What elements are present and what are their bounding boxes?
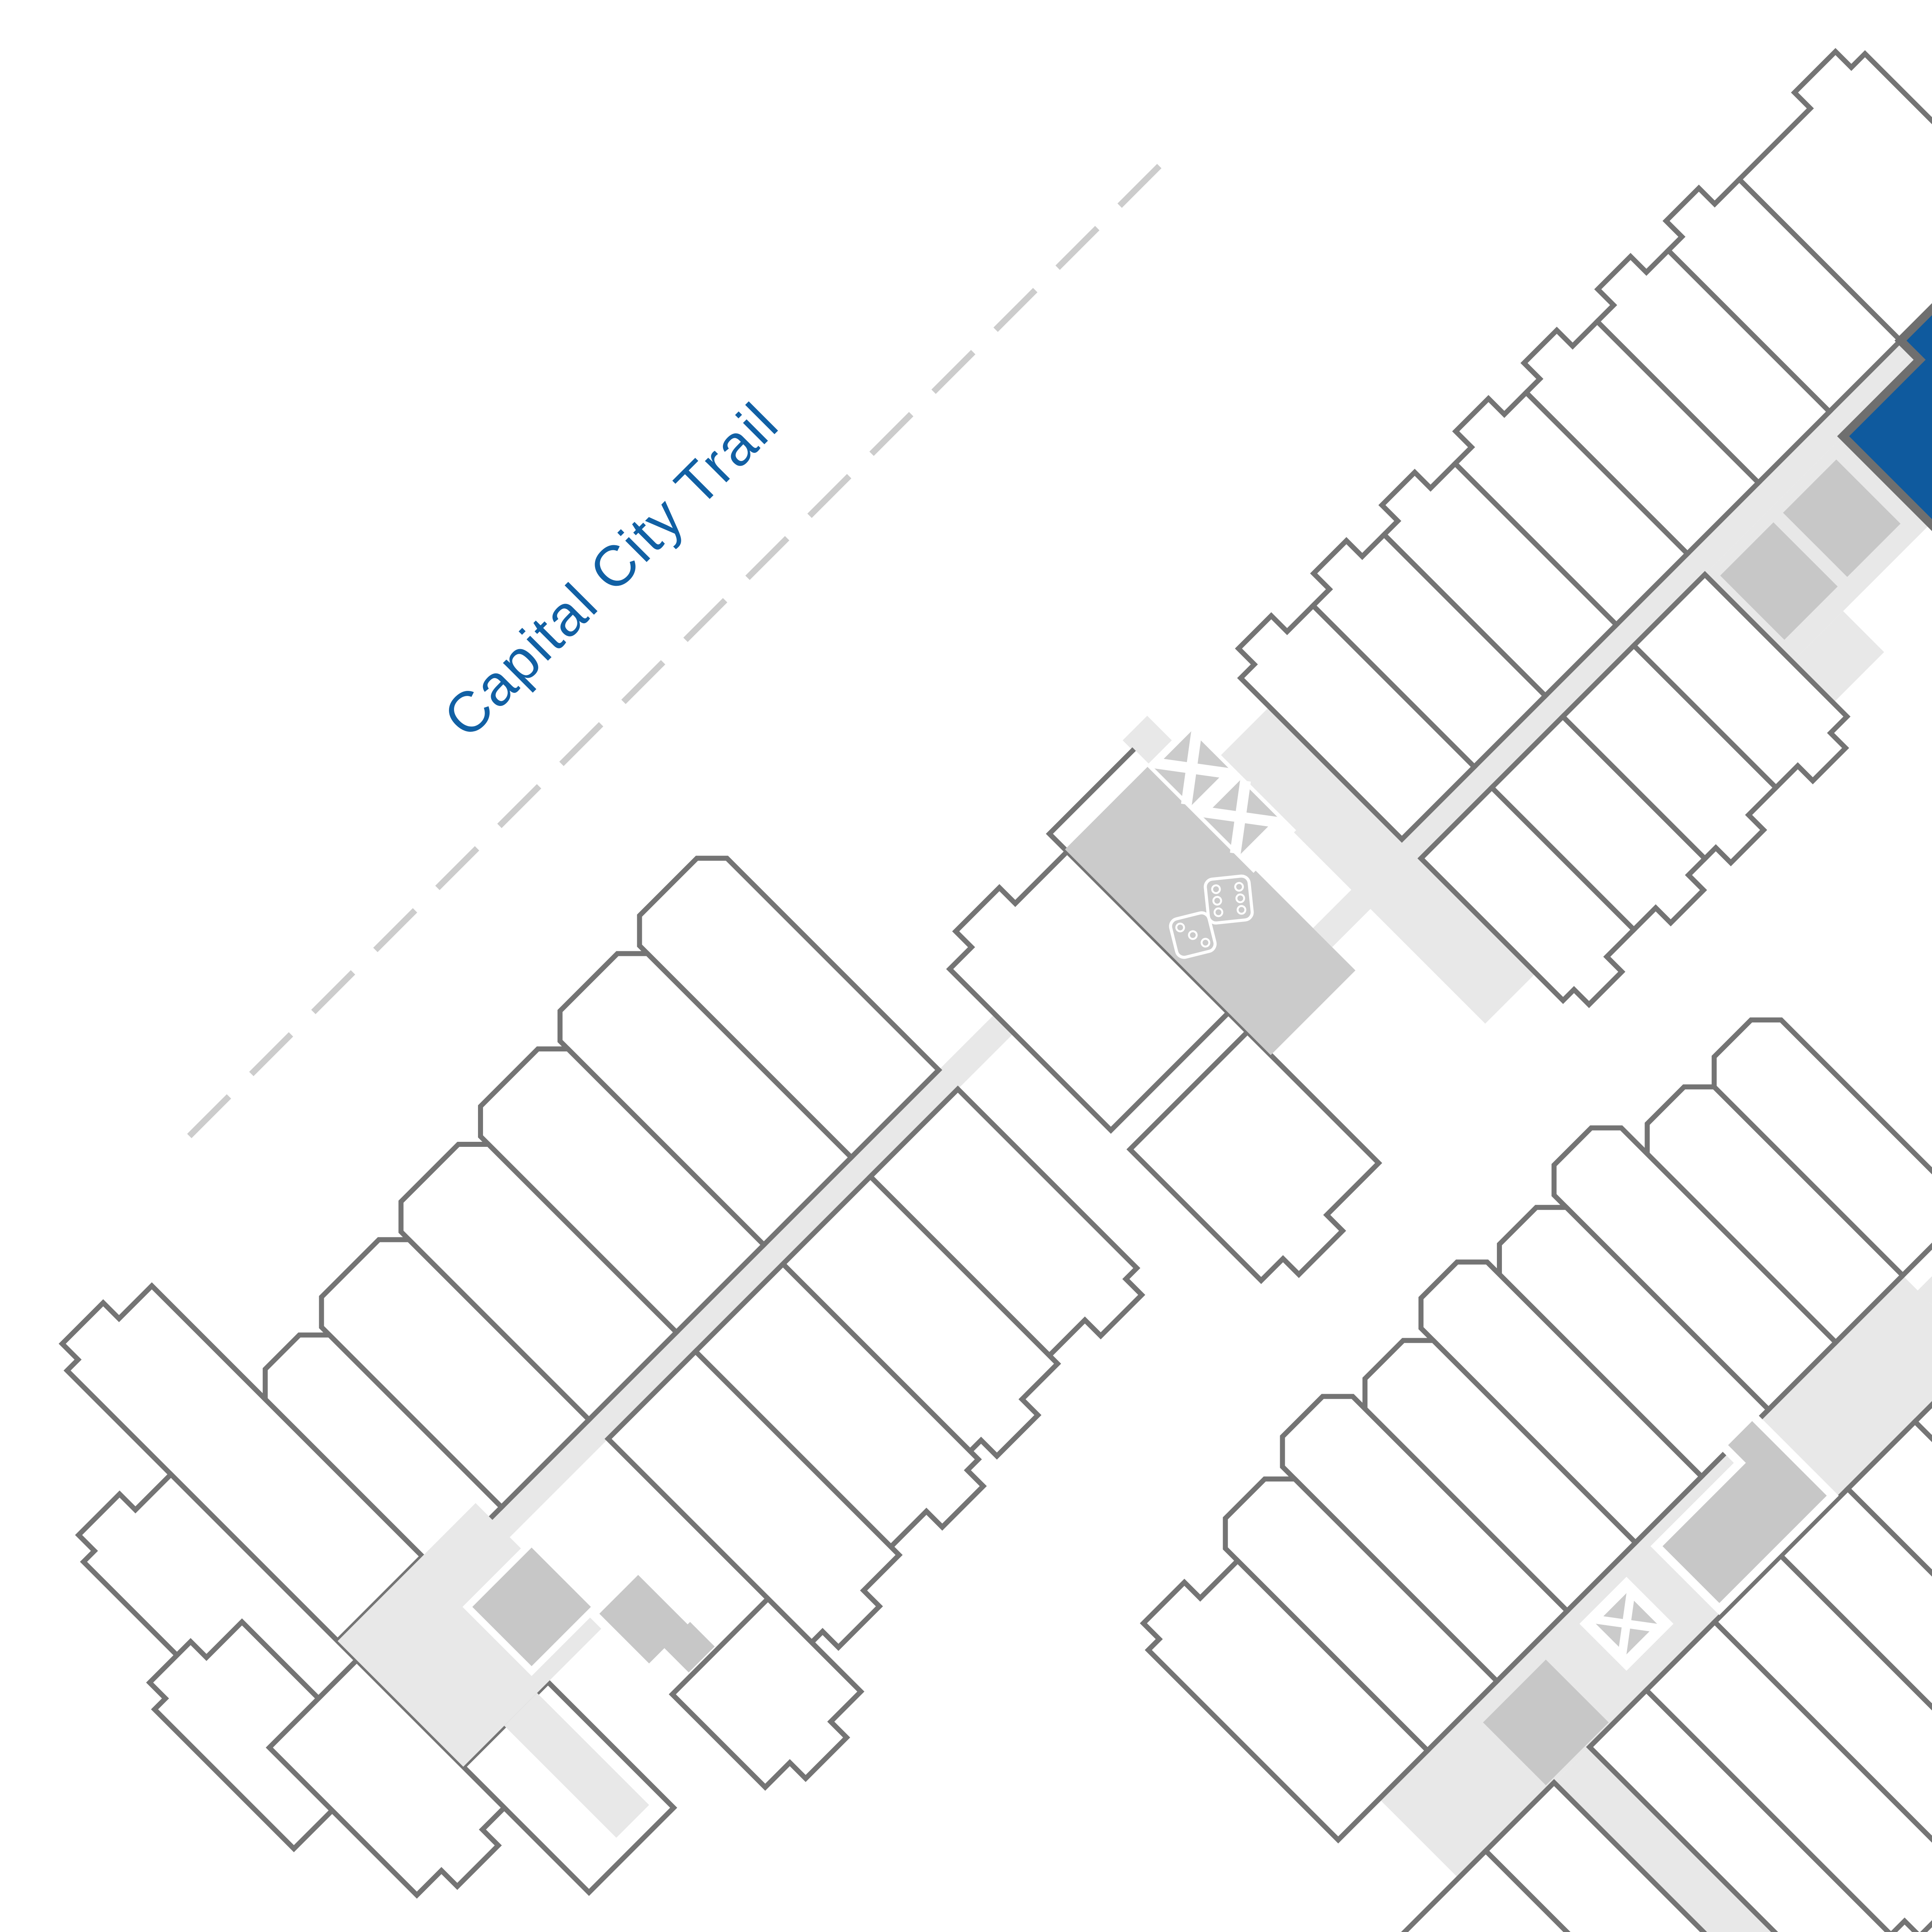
svg-text:Capital City Trail: Capital City Trail xyxy=(432,391,791,750)
